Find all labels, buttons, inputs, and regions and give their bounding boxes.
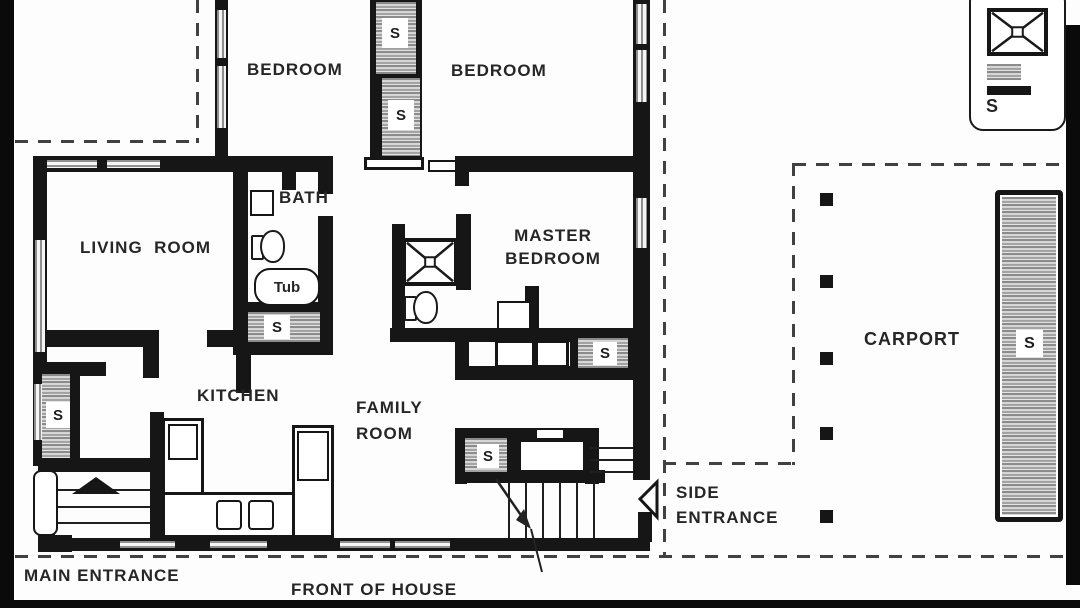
room-label-bath: BATH	[279, 189, 329, 206]
bath-left-wall	[233, 156, 248, 348]
kitchen-sink-left	[216, 500, 242, 530]
living-room-window-top	[47, 160, 97, 168]
bath-sink-nook-stub	[282, 166, 296, 190]
carport-post	[820, 352, 833, 365]
room-label-master-line1: MASTER	[514, 227, 592, 244]
living-room-window-left	[35, 240, 45, 352]
label-side-entrance-line1: SIDE	[676, 484, 720, 501]
stair-arrow-head	[516, 509, 531, 529]
entry-step3	[58, 522, 150, 524]
stair-tread	[508, 482, 510, 538]
room-label-living-room: LIVING ROOM	[80, 239, 211, 256]
patio-dashed-line-vertical	[196, 0, 199, 143]
bedroom2-window2	[636, 50, 647, 102]
entry-step2	[58, 506, 150, 508]
room-label-bedroom1: BEDROOM	[247, 61, 343, 78]
room-label-carport: CARPORT	[864, 330, 960, 348]
master-top-wall-stub	[455, 156, 469, 186]
tub-label: Tub	[274, 279, 300, 296]
storage-chip-bath-closet: S	[264, 315, 290, 339]
storage-chip-master-closet: S	[593, 342, 617, 365]
fireplace-notch	[535, 428, 565, 440]
main-entrance-door-leaf	[33, 470, 58, 536]
side-entrance-dashed-top	[663, 462, 793, 465]
stair-arrow-line	[496, 479, 527, 524]
front-window1	[120, 541, 175, 548]
room-label-master-line2: BEDROOM	[505, 250, 601, 267]
bath-sink	[250, 190, 274, 216]
front-window4	[395, 541, 450, 548]
room-label-family-line1: FAMILY	[356, 399, 423, 416]
carport-post	[820, 510, 833, 523]
bath-toilet	[251, 230, 283, 260]
bathtub: Tub	[254, 268, 320, 306]
closet-row-bottom-wall	[455, 366, 640, 380]
left-frame-bar	[0, 0, 14, 602]
shower-x-glyph	[406, 242, 454, 282]
label-side-entrance-line2: ENTRANCE	[676, 509, 778, 526]
closet-row-left-stub	[455, 330, 469, 380]
storage-chip-carport: S	[1016, 330, 1043, 357]
master-dresser-left	[495, 340, 535, 368]
toilet-bowl	[260, 230, 285, 263]
front-window2	[210, 541, 267, 548]
master-dresser-right	[535, 340, 569, 368]
fireplace	[517, 438, 587, 474]
master-top-wall	[455, 156, 640, 172]
living-room-window-top2	[107, 160, 160, 168]
shower-right-wall	[456, 214, 471, 290]
stair-tread	[576, 482, 578, 538]
stair-tread	[559, 482, 561, 538]
stove	[297, 431, 329, 481]
master-sink	[497, 301, 531, 330]
label-main-entrance: MAIN ENTRANCE	[24, 567, 180, 584]
carport-post	[820, 275, 833, 288]
storage-chip-bedroom1-closet: S	[382, 18, 408, 48]
legend-closet-symbol	[987, 64, 1021, 80]
storage-chip-entry-closet: S	[46, 402, 70, 428]
carport-dashed-left	[792, 163, 795, 465]
storage-chip-family-closet: S	[477, 444, 499, 468]
front-window3	[340, 541, 390, 548]
bath-right-wall-lower	[318, 216, 333, 346]
room-label-kitchen: KITCHEN	[197, 387, 280, 404]
legend-wall-symbol	[987, 86, 1031, 95]
side-entry-step3	[590, 471, 633, 473]
stair-tread	[525, 482, 527, 538]
floor-plan: Tub	[0, 0, 1080, 608]
carport-dashed-top	[793, 163, 1066, 166]
kitchen-sink-right	[248, 500, 274, 530]
main-entrance-arrow	[72, 477, 120, 494]
legend-shower-symbol	[987, 8, 1048, 56]
side-entry-step	[590, 447, 633, 449]
carport-post	[820, 427, 833, 440]
shower-x-glyph	[991, 12, 1044, 52]
living-room-bottom-stub	[143, 330, 159, 378]
patio-dashed-line-horizontal	[15, 140, 197, 143]
storage-chip-bedroom2-closet: S	[388, 100, 414, 130]
stair-tread	[593, 482, 595, 538]
carport-post	[820, 193, 833, 206]
master-window	[636, 198, 647, 248]
master-shower	[402, 238, 458, 286]
bottom-frame-bar	[0, 600, 1080, 608]
lot-dashed-line	[663, 0, 666, 557]
closet-column-end-cap	[364, 157, 424, 170]
entry-step	[58, 489, 150, 491]
side-entry-step2	[590, 459, 633, 461]
bedroom1-window	[217, 10, 226, 58]
toilet-bowl	[413, 291, 438, 324]
master-toilet	[404, 291, 436, 321]
stair-tread	[542, 482, 544, 538]
entry-top-wall	[38, 458, 153, 472]
living-room-bottom-wall	[45, 330, 145, 347]
refrigerator	[168, 424, 198, 460]
right-frame-bar	[1066, 25, 1080, 585]
legend-storage-label: S	[986, 97, 999, 115]
entry-closet-right-wall	[70, 374, 80, 460]
room-label-bedroom2: BEDROOM	[451, 62, 547, 79]
bedroom2-window	[636, 4, 647, 44]
front-property-dashed-line	[15, 555, 1066, 558]
bath-bottom-wall	[233, 340, 333, 355]
bedroom1-window2	[217, 66, 226, 128]
room-label-family-line2: ROOM	[356, 425, 413, 442]
label-front-of-house: FRONT OF HOUSE	[291, 581, 457, 598]
